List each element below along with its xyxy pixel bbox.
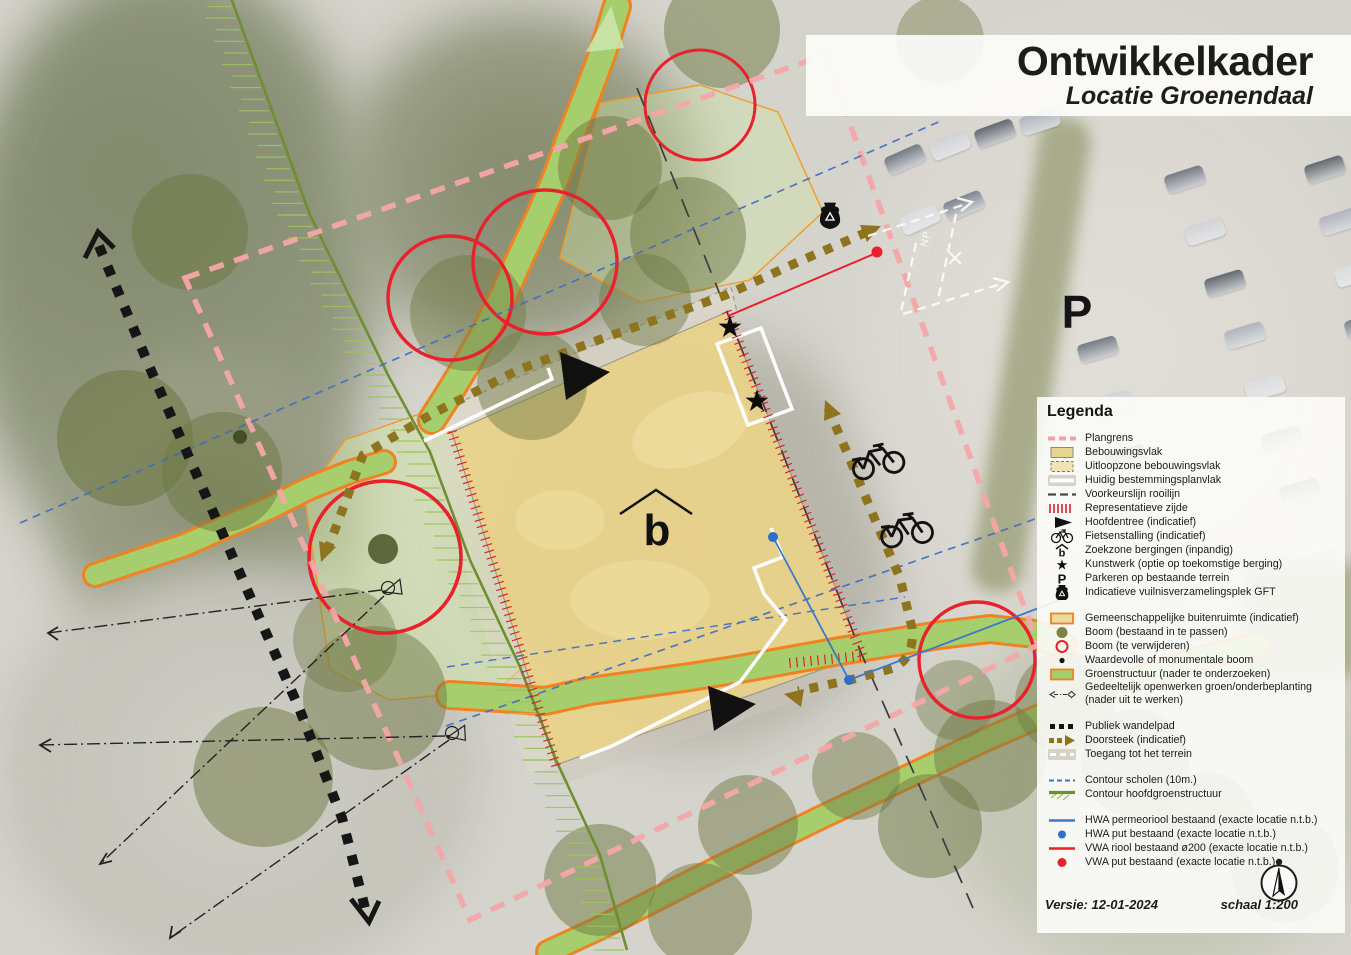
legend-group: Contour scholen (10m.)Contour hoofdgroen…	[1045, 773, 1337, 801]
legend-item-label: Boom (te verwijderen)	[1085, 640, 1190, 653]
legend-item-label: Gemeenschappelijke buitenruimte (indicat…	[1085, 612, 1299, 625]
legend-item-gft: Indicatieve vuilnisverzamelingsplek GFT	[1045, 585, 1337, 599]
legend-item-publiek-wandelpad: Publiek wandelpad	[1045, 719, 1337, 733]
kunstwerk-star-icon: ★	[717, 311, 744, 344]
ticks-red-swatch-icon	[1045, 501, 1079, 515]
page-title: Ontwikkelkader	[1017, 41, 1313, 83]
legend-item-label: Boom (bestaand in te passen)	[1085, 626, 1228, 639]
legend-item-label: Toegang tot het terrein	[1085, 748, 1192, 761]
legend-item-contour-scholen: Contour scholen (10m.)	[1045, 773, 1337, 787]
legend-item-label: Hoofdentree (indicatief)	[1085, 516, 1196, 529]
version-label: Versie: 12-01-2024	[1045, 897, 1158, 912]
parking-label: P	[1062, 286, 1093, 338]
rect-tan-dash-swatch-icon	[1045, 459, 1079, 473]
legend-item-label: Fietsenstalling (indicatief)	[1085, 530, 1206, 543]
monumental-tree-dot	[233, 430, 247, 444]
title-band: Ontwikkelkader Locatie Groenendaal	[806, 35, 1351, 116]
legend-rows: PlangrensBebouwingsvlakUitloopzone bebou…	[1045, 431, 1337, 869]
legend-item-doorsteek: Doorsteek (indicatief)	[1045, 733, 1337, 747]
circle-red-swatch-icon	[1045, 639, 1079, 653]
dash-pink-swatch-icon	[1045, 431, 1079, 445]
legend-item-parkeren: PParkeren op bestaande terrein	[1045, 571, 1337, 585]
rect-orange-swatch-icon	[1045, 611, 1079, 625]
legend-item-gedeeltelijk-openwerken: Gedeeltelijk openwerken groen/onderbepla…	[1045, 681, 1337, 707]
building-label: b	[644, 506, 671, 555]
legend-heading: Legenda	[1047, 403, 1337, 421]
dot-black-swatch-icon	[1045, 653, 1079, 667]
legend-item-uitloopzone-bebouwingsvlak: Uitloopzone bebouwingsvlak	[1045, 459, 1337, 473]
legend-item-toegang-terrein: Toegang tot het terrein	[1045, 747, 1337, 761]
dot-red-swatch-icon	[1045, 855, 1079, 869]
photo-marking-label: NP	[919, 230, 933, 248]
rect-green-swatch-icon	[1045, 667, 1079, 681]
legend-item-zoekzone-bergingen: bZoekzone bergingen (inpandig)	[1045, 543, 1337, 557]
hwa-put-dot	[768, 532, 778, 542]
legend-item-label: Voorkeurslijn rooilijn	[1085, 488, 1180, 501]
legend-item-boom-bestaand: Boom (bestaand in te passen)	[1045, 625, 1337, 639]
gft-bag-icon	[820, 203, 840, 229]
dot-blue-swatch-icon	[1045, 827, 1079, 841]
zoekzone-swatch-icon: b	[1045, 543, 1079, 557]
page-subtitle: Locatie Groenendaal	[1066, 83, 1313, 111]
kunstwerk-star-icon: ★	[744, 385, 771, 418]
legend-item-label: Waardevolle of monumentale boom	[1085, 654, 1253, 667]
gft-swatch-icon	[1045, 585, 1079, 599]
legend-item-label: HWA put bestaand (exacte locatie n.t.b.)	[1085, 828, 1276, 841]
legend-item-label: Kunstwerk (optie op toekomstige berging)	[1085, 558, 1282, 571]
legend-item-gemeenschappelijke-buitenruimte: Gemeenschappelijke buitenruimte (indicat…	[1045, 611, 1337, 625]
letter-p-swatch-icon: P	[1045, 571, 1079, 585]
legend-item-label: Uitloopzone bebouwingsvlak	[1085, 460, 1220, 473]
legend-item-label: Doorsteek (indicatief)	[1085, 734, 1186, 747]
line-white-swatch-icon	[1045, 473, 1079, 487]
legend-item-hwa-permeoriool: HWA permeoriool bestaand (exacte locatie…	[1045, 813, 1337, 827]
dots-brown-swatch-icon	[1045, 733, 1079, 747]
legend-item-fietsenstalling: Fietsenstalling (indicatief)	[1045, 529, 1337, 543]
bicycle-icon	[849, 441, 905, 481]
legend-item-bebouwingsvlak: Bebouwingsvlak	[1045, 445, 1337, 459]
hwa-put-dot	[844, 675, 854, 685]
legend-item-representatieve-zijde: Representatieve zijde	[1045, 501, 1337, 515]
legend-item-label: Publiek wandelpad	[1085, 720, 1175, 733]
legend-group: Gemeenschappelijke buitenruimte (indicat…	[1045, 611, 1337, 707]
plan-canvas: ★ ★ b P NP Ontwikkelkader Locatie Groene…	[0, 0, 1351, 955]
tri-black-swatch-icon	[1045, 515, 1079, 529]
star-swatch-icon: ★	[1045, 557, 1079, 571]
north-compass-icon	[1256, 856, 1302, 906]
legend-item-plangrens: Plangrens	[1045, 431, 1337, 445]
svg-text:P: P	[1058, 571, 1067, 586]
openwerk-swatch-icon	[1045, 687, 1079, 701]
vwa-put-dot	[872, 247, 883, 258]
svg-text:★: ★	[1056, 557, 1069, 572]
legend-item-hwa-put: HWA put bestaand (exacte locatie n.t.b.)	[1045, 827, 1337, 841]
dash-dark-swatch-icon	[1045, 487, 1079, 501]
legend-item-label: VWA put bestaand (exacte locatie n.t.b.)	[1085, 856, 1275, 869]
dash-white-swatch-icon	[1045, 747, 1079, 761]
legend-item-label: Bebouwingsvlak	[1085, 446, 1162, 459]
legend-item-boom-te-verwijderen: Boom (te verwijderen)	[1045, 639, 1337, 653]
legend-item-contour-hoofdgroenstructuur: Contour hoofdgroenstructuur	[1045, 787, 1337, 801]
legend-item-vwa-riool: VWA riool bestaand ø200 (exacte locatie …	[1045, 841, 1337, 855]
legend-item-label: VWA riool bestaand ø200 (exacte locatie …	[1085, 842, 1308, 855]
legend-item-waardevolle-boom: Waardevolle of monumentale boom	[1045, 653, 1337, 667]
legend-item-label: Groenstructuur (nader te onderzoeken)	[1085, 668, 1270, 681]
legend-item-label: Plangrens	[1085, 432, 1133, 445]
rect-tan-swatch-icon	[1045, 445, 1079, 459]
legend-item-label: Zoekzone bergingen (inpandig)	[1085, 544, 1233, 557]
legend-item-label: Representatieve zijde	[1085, 502, 1188, 515]
bicycle-icon	[879, 511, 934, 548]
line-blue-swatch-icon	[1045, 813, 1079, 827]
legend-group: Publiek wandelpadDoorsteek (indicatief)T…	[1045, 719, 1337, 761]
legend-item-groenstructuur: Groenstructuur (nader te onderzoeken)	[1045, 667, 1337, 681]
view-eye-icon	[445, 725, 465, 741]
line-greenhatch-swatch-icon	[1045, 787, 1079, 801]
legend-item-label: Gedeeltelijk openwerken groen/onderbepla…	[1085, 681, 1312, 707]
legend-item-voorkeurslijn-rooilijn: Voorkeurslijn rooilijn	[1045, 487, 1337, 501]
circle-olive-swatch-icon	[1045, 625, 1079, 639]
legend-item-label: Contour hoofdgroenstructuur	[1085, 788, 1222, 801]
legend-item-label: HWA permeoriool bestaand (exacte locatie…	[1085, 814, 1317, 827]
dash-blue-swatch-icon	[1045, 773, 1079, 787]
line-red-swatch-icon	[1045, 841, 1079, 855]
bike-swatch-icon	[1045, 529, 1079, 543]
legend-item-kunstwerk: ★Kunstwerk (optie op toekomstige berging…	[1045, 557, 1337, 571]
legend-item-huidig-bestemmingsplanvlak: Huidig bestemmingsplanvlak	[1045, 473, 1337, 487]
legend-item-label: Parkeren op bestaande terrein	[1085, 572, 1229, 585]
dots-black-swatch-icon	[1045, 719, 1079, 733]
legend-item-label: Contour scholen (10m.)	[1085, 774, 1197, 787]
monumental-tree-dot	[368, 534, 398, 564]
toegang-arrows	[868, 198, 1008, 314]
legend-panel: Legenda PlangrensBebouwingsvlakUitloopzo…	[1037, 397, 1345, 933]
legend-group: PlangrensBebouwingsvlakUitloopzone bebou…	[1045, 431, 1337, 599]
legend-item-hoofdentree: Hoofdentree (indicatief)	[1045, 515, 1337, 529]
legend-item-label: Indicatieve vuilnisverzamelingsplek GFT	[1085, 586, 1276, 599]
legend-item-label: Huidig bestemmingsplanvlak	[1085, 474, 1221, 487]
